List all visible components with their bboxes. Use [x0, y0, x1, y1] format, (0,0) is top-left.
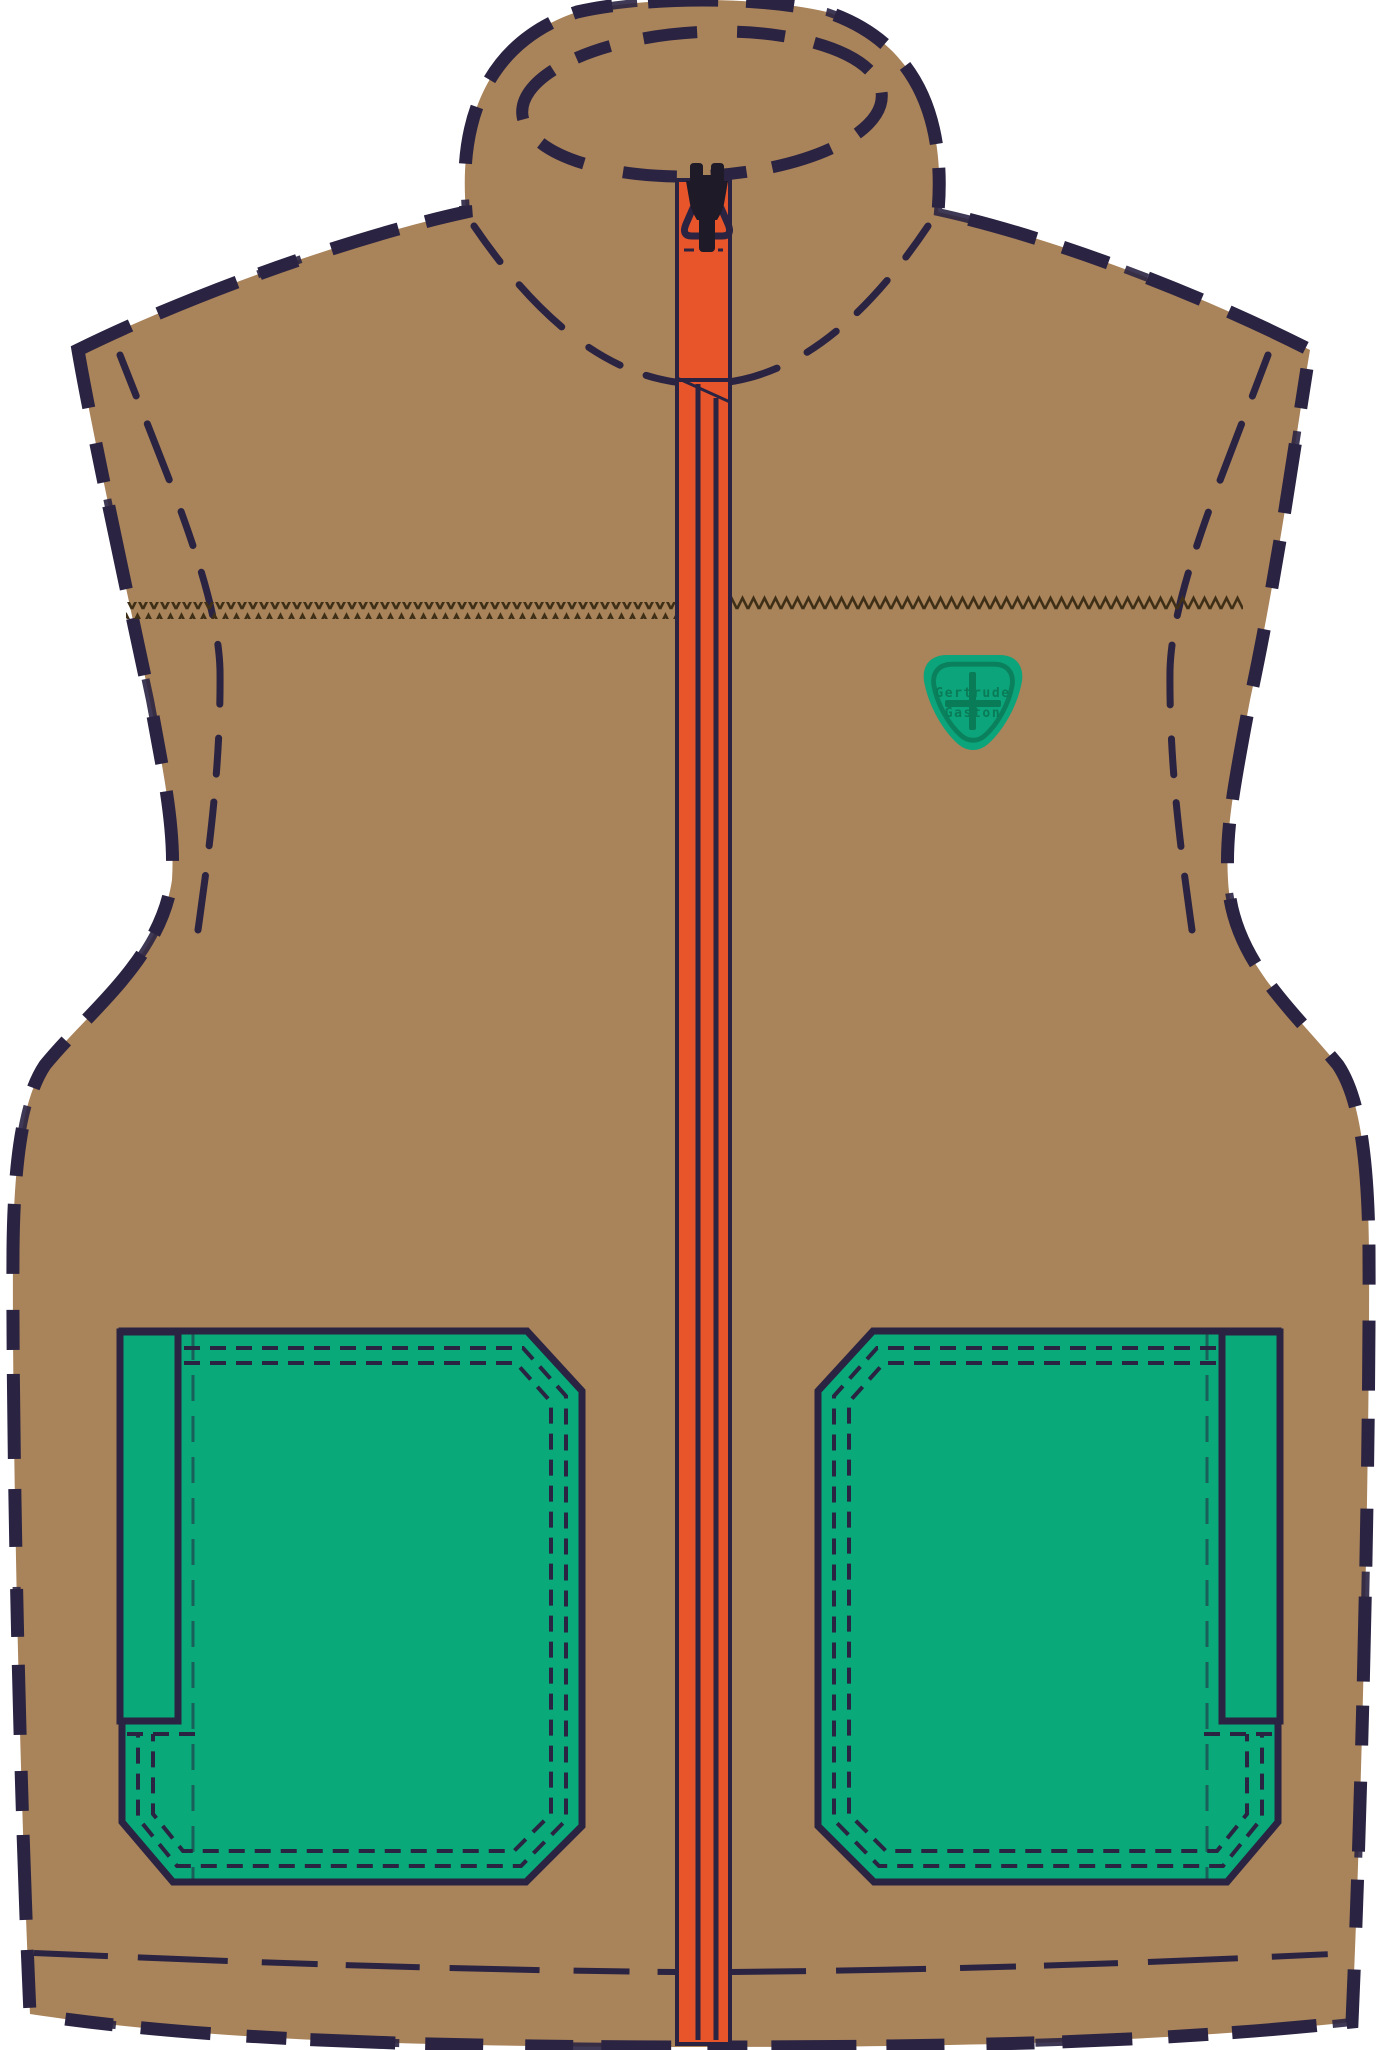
vest-flat-sketch: Gertrude Gaston — [0, 0, 1382, 2050]
front-zipper — [677, 163, 730, 2044]
right-pocket-panel — [818, 1331, 1278, 1882]
zipper-slider — [684, 163, 729, 252]
zipper-tape — [677, 180, 730, 2044]
right-pocket — [818, 1331, 1280, 1882]
chest-seam-right — [731, 595, 1243, 612]
left-pocket-side-strip — [120, 1332, 178, 1721]
right-pocket-side-strip — [1222, 1332, 1280, 1721]
chest-seam-left — [126, 602, 676, 619]
left-pocket — [120, 1331, 582, 1882]
vest-illustration: Gertrude Gaston — [0, 0, 1382, 2050]
left-pocket-panel — [122, 1331, 582, 1882]
